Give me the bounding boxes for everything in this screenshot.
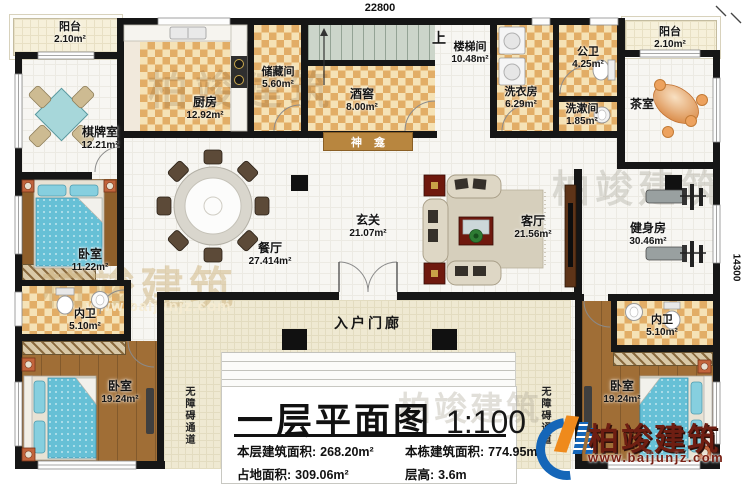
room-label-washroom: 洗漱间1.85m² — [550, 103, 614, 127]
room-area: 19.24m² — [582, 394, 662, 406]
room-area: 1.85m² — [550, 116, 614, 128]
room-name: 酒窖 — [350, 87, 374, 101]
room-label-laundry: 洗衣房6.29m² — [486, 86, 556, 110]
dimension-ticks — [716, 6, 741, 23]
stat-value: 3.6m — [438, 468, 467, 482]
room-area: 21.56m² — [493, 229, 573, 241]
room-name: 棋牌室 — [82, 125, 118, 139]
stat-value: 309.06m² — [295, 468, 349, 482]
room-area: 12.92m² — [165, 110, 245, 122]
stat-building-area: 本栋建筑面积:774.95m² — [405, 441, 542, 460]
room-name: 餐厅 — [258, 241, 282, 255]
room-name: 储藏间 — [262, 66, 295, 78]
room-area: 11.22m² — [50, 262, 130, 274]
room-label-bath-right: 内卫5.10m² — [622, 314, 702, 338]
room-area: 30.46m² — [608, 236, 688, 248]
laundry-machines — [499, 27, 525, 85]
room-label-chess-room: 棋牌室12.21m² — [62, 126, 138, 151]
stat-value: 774.95m² — [488, 445, 542, 459]
porch-label: 入户门廊 — [298, 313, 438, 333]
brand-url: www.baijunjz.com — [588, 450, 724, 465]
room-area: 4.25m² — [556, 59, 620, 71]
room-area: 8.00m² — [322, 102, 402, 114]
shrine-label: 神龛 — [339, 134, 397, 150]
room-name: 阳台 — [659, 26, 681, 38]
room-label-foyer: 玄关21.07m² — [328, 214, 408, 239]
bed-bottom-left — [22, 358, 154, 461]
stat-floor-area: 本层建筑面积:268.20m² — [237, 441, 405, 460]
room-name: 玄关 — [356, 213, 380, 227]
room-area: 5.60m² — [243, 79, 313, 91]
room-label-public-bath: 公卫4.25m² — [556, 46, 620, 70]
room-name: 卧室 — [108, 379, 132, 393]
room-name: 洗衣房 — [505, 86, 538, 98]
room-area: 12.21m² — [62, 140, 138, 152]
room-label-stairwell: 楼梯间10.48m² — [438, 41, 502, 65]
room-name: 厨房 — [193, 95, 217, 109]
stat-label: 本栋建筑面积: — [405, 445, 484, 459]
room-label-living: 客厅21.56m² — [493, 215, 573, 240]
room-label-balcony-left: 阳台2.10m² — [30, 21, 110, 45]
room-label-cellar: 酒窖8.00m² — [322, 88, 402, 113]
room-label-kitchen: 厨房12.92m² — [165, 96, 245, 121]
room-area: 21.07m² — [328, 228, 408, 240]
room-name: 楼梯间 — [454, 41, 487, 53]
shrine-niche: 神龛 — [323, 132, 413, 151]
room-name: 茶室 — [630, 97, 654, 111]
stat-story-height: 层高:3.6m — [405, 464, 542, 483]
stat-value: 268.20m² — [320, 445, 374, 459]
room-label-tea-room: 茶室 — [612, 98, 672, 112]
room-name: 内卫 — [651, 314, 673, 326]
stat-label: 层高: — [405, 468, 434, 482]
room-area: 10.48m² — [438, 54, 502, 66]
room-area: 6.29m² — [486, 99, 556, 111]
dimension-right: 14300 — [731, 240, 742, 296]
plan-stats: 本层建筑面积:268.20m² 本栋建筑面积:774.95m² 占地面积:309… — [237, 441, 542, 483]
room-area: 2.10m² — [30, 34, 110, 46]
room-area: 2.10m² — [630, 39, 710, 51]
room-name: 内卫 — [74, 308, 96, 320]
room-name: 卧室 — [78, 247, 102, 261]
ramp-left-label: 无障碍通道 — [181, 386, 196, 446]
room-area: 27.414m² — [230, 256, 310, 268]
room-label-dining: 餐厅27.414m² — [230, 242, 310, 267]
room-name: 公卫 — [577, 46, 599, 58]
room-label-bedroom-br: 卧室19.24m² — [582, 380, 662, 405]
room-label-balcony-right: 阳台2.10m² — [630, 26, 710, 50]
room-area: 19.24m² — [80, 394, 160, 406]
dimension-top: 22800 — [330, 2, 430, 14]
room-name: 阳台 — [59, 21, 81, 33]
room-label-bedroom-left: 卧室11.22m² — [50, 248, 130, 273]
room-label-storage: 储藏间5.60m² — [243, 66, 313, 90]
room-name: 卧室 — [610, 379, 634, 393]
room-area: 5.10m² — [45, 321, 125, 333]
floorplan-page: 柏竣建筑 www.baijunjz.com 柏竣建筑 柏竣建筑 柏竣建筑 — [0, 0, 750, 484]
room-label-bedroom-bl: 卧室19.24m² — [80, 380, 160, 405]
stat-label: 占地面积: — [237, 468, 291, 482]
room-name: 洗漱间 — [566, 103, 599, 115]
room-area: 5.10m² — [622, 327, 702, 339]
title-underline — [234, 434, 506, 437]
room-label-bath-left: 内卫5.10m² — [45, 308, 125, 332]
room-name: 健身房 — [630, 221, 666, 235]
stat-label: 本层建筑面积: — [237, 445, 316, 459]
room-label-gym: 健身房30.46m² — [608, 222, 688, 247]
stat-footprint-area: 占地面积:309.06m² — [237, 464, 405, 483]
room-name: 客厅 — [521, 214, 545, 228]
stair-arrow-icon — [320, 28, 328, 85]
